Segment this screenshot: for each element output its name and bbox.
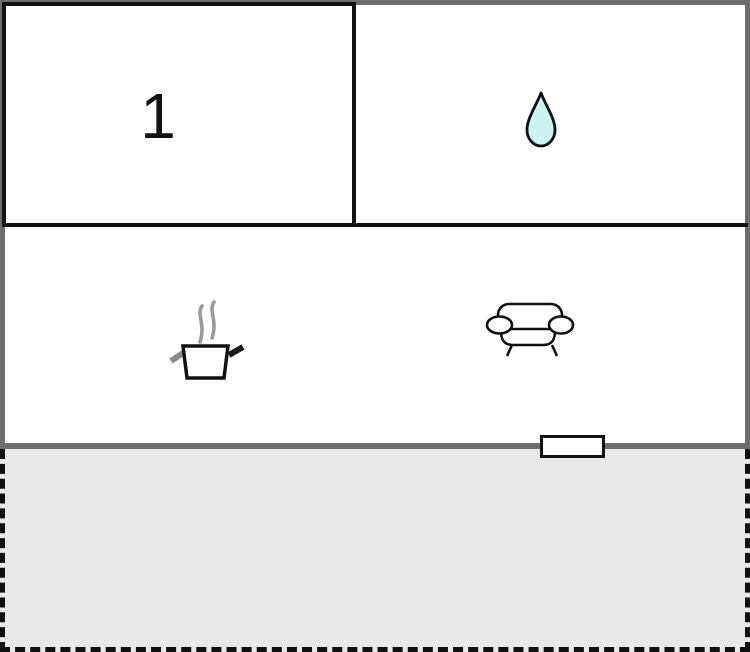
water-drop-icon: [523, 90, 559, 150]
wall-bottom: [0, 443, 750, 449]
room-number-label: 1: [123, 84, 193, 148]
room-bedroom-1: 1: [2, 2, 356, 227]
terrace: [0, 449, 750, 652]
cooking-pot-icon: [168, 296, 246, 386]
sofa-icon: [481, 299, 575, 357]
floorplan: 1: [0, 0, 750, 652]
door: [540, 435, 605, 458]
